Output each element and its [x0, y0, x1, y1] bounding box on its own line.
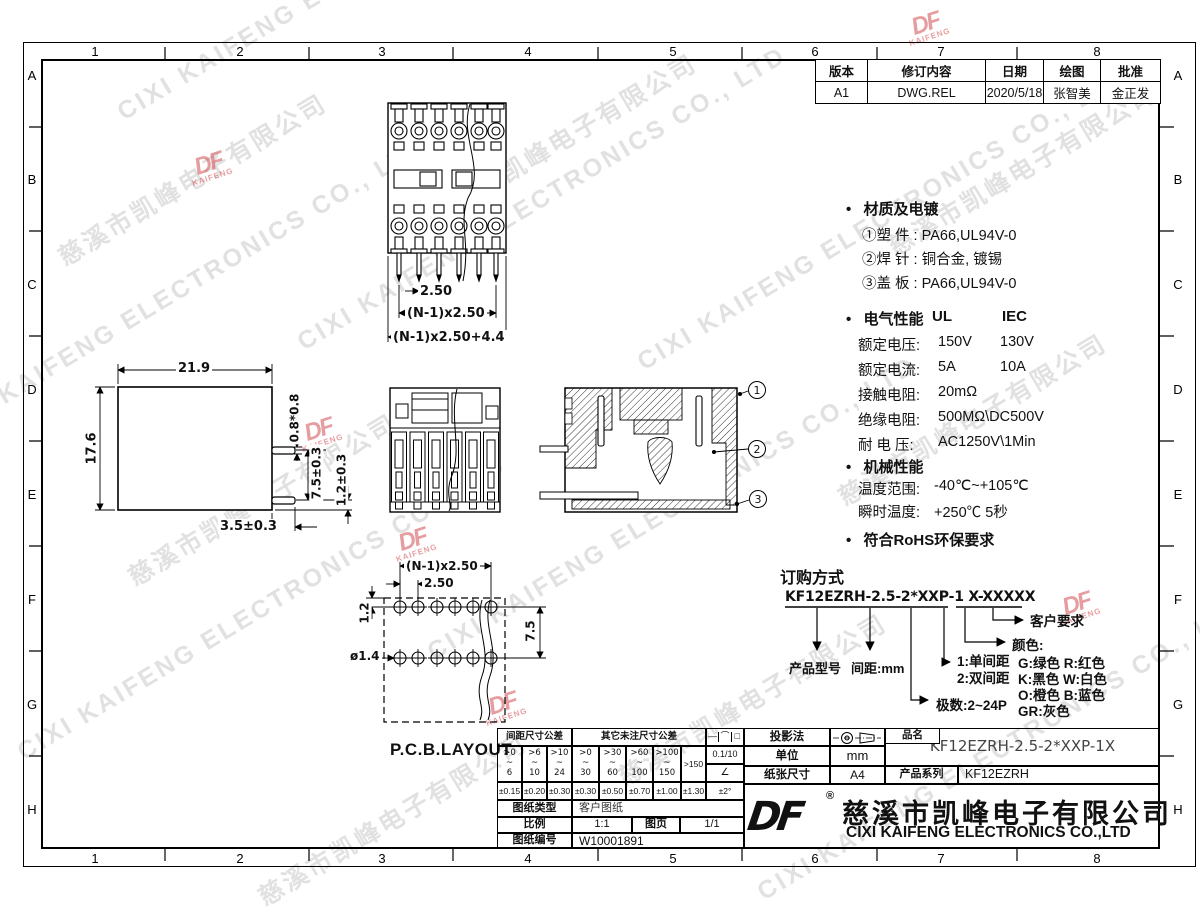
range-bot: 24	[551, 769, 569, 779]
sheet-type-label: 图纸类型	[497, 800, 572, 817]
spec-ul-value: 20mΩ	[938, 384, 977, 400]
spec-label: 额定电压:	[858, 334, 920, 355]
revision-cell: 张智美	[1044, 82, 1101, 104]
bullet-icon: •	[846, 532, 851, 549]
grid-row-label: C	[24, 277, 40, 292]
series-value: KF12EZRH	[958, 766, 1160, 784]
tol-value: ±0.30	[572, 782, 599, 800]
revision-cell: DWG.REL	[868, 82, 986, 104]
tol-value: ±2°	[706, 782, 744, 800]
revision-header: 绘图	[1044, 60, 1101, 82]
tol-value: ±1.00	[653, 782, 681, 800]
tol-angle-symbol: ∠	[706, 764, 744, 782]
grid-row-label: H	[24, 802, 40, 817]
grid-col-label: 3	[374, 851, 390, 866]
unit-value: mm	[830, 746, 885, 766]
drawing-sheet: 慈溪市凯峰电子有限公司 CIXI KAIFENG ELECTRONICS CO.…	[0, 0, 1200, 910]
range-bot: 100	[631, 769, 649, 779]
grid-row-label: D	[24, 382, 40, 397]
spec-value: -40℃~+105℃	[934, 478, 1029, 494]
range-bot: 10	[528, 769, 541, 779]
dim-pin-edge: 1.2±0.3	[334, 452, 348, 509]
grid-col-label: 4	[520, 44, 536, 59]
revision-cell: 2020/5/18	[986, 82, 1044, 104]
grid-row-label: E	[1170, 487, 1186, 502]
spec-label: 接触电阻:	[858, 384, 920, 405]
tol-range: >0~30	[572, 746, 599, 782]
tol-symbols: — ⌒ □	[706, 728, 744, 746]
square-symbol: □	[732, 732, 743, 741]
range-bot: 60	[604, 769, 622, 779]
spec-value: +250℃ 5秒	[934, 501, 1008, 522]
flatness-symbol: —	[707, 732, 718, 741]
callout-3: 3	[749, 490, 767, 508]
ordering-title: 订购方式	[780, 564, 844, 588]
drawing-no-value: W10001891	[572, 833, 744, 849]
ordering-poles-label: 极数:2~24P	[936, 694, 1007, 714]
tol-value: ±0.15	[497, 782, 522, 800]
spec-label: 耐 电 压:	[858, 434, 914, 455]
spec-label: 额定电流:	[858, 359, 920, 380]
tol-surface: 0.1/10	[706, 746, 744, 764]
revision-cell: A1	[816, 82, 868, 104]
bullet-icon: •	[846, 201, 851, 218]
spec-ul-value: 150V	[938, 334, 972, 350]
electrical-title: 电气性能	[863, 311, 923, 328]
grid-row-label: F	[1170, 592, 1186, 607]
ordering-row-double-label: 2:双间距	[957, 667, 1010, 687]
grid-col-label: 1	[87, 44, 103, 59]
dim-overall: (N-1)x2.50+4.4	[391, 330, 507, 345]
dim-pcb-offset: 1.2	[358, 600, 372, 625]
series-label: 产品系列	[885, 766, 958, 784]
page-label: 图页	[632, 817, 680, 833]
registered-mark: ®	[826, 790, 834, 802]
revision-table: 版本 修订内容 日期 绘图 批准 A1 DWG.REL 2020/5/18 张智…	[815, 59, 1161, 104]
drawing-no-label: 图纸编号	[497, 833, 572, 849]
ul-column-header: UL	[932, 308, 952, 325]
pcb-layout-label: P.C.B.LAYOUT	[390, 740, 512, 760]
dim-tail: 3.5±0.3	[218, 519, 279, 534]
tol-range: >100~150	[653, 746, 681, 782]
dim-pitch: 2.50	[418, 284, 454, 299]
callout-1: 1	[748, 381, 766, 399]
ordering-product-model-label: 产品型号	[789, 658, 841, 677]
spec-label: 温度范围:	[858, 478, 920, 499]
dim-pcb-span: (N-1)x2.50	[404, 559, 480, 573]
range-bot: 6	[503, 769, 516, 779]
unit-label: 单位	[744, 746, 830, 766]
dim-pcb-pitch: 2.50	[422, 576, 456, 590]
revision-header: 批准	[1101, 60, 1161, 82]
dim-height: 17.6	[85, 430, 100, 466]
scale-label: 比例	[497, 817, 572, 833]
dim-pcb-hole: ø1.4	[348, 649, 382, 663]
grid-row-label: F	[24, 592, 40, 607]
company-logo: DF	[745, 794, 804, 840]
tol-value: ±0.30	[547, 782, 572, 800]
tol-range: >0~6	[497, 746, 522, 782]
tol-value: ±0.70	[626, 782, 653, 800]
grid-row-label: G	[1170, 697, 1186, 712]
tol-range: >60~100	[626, 746, 653, 782]
grid-col-label: 8	[1089, 851, 1105, 866]
projection-label: 投影法	[744, 728, 830, 746]
arc-symbol: ⌒	[718, 732, 731, 741]
grid-col-label: 3	[374, 44, 390, 59]
grid-col-label: 7	[933, 44, 949, 59]
material-item: ②焊 针 : 铜合金, 镀锡	[862, 248, 1002, 269]
spec-iec-value: 10A	[1000, 359, 1026, 375]
grid-row-label: H	[1170, 802, 1186, 817]
tol-pitch-header: 间距尺寸公差	[497, 728, 572, 746]
grid-row-label: D	[1170, 382, 1186, 397]
grid-col-label: 2	[232, 851, 248, 866]
mechanical-title: 机械性能	[863, 459, 923, 476]
paper-size-value: A4	[830, 766, 885, 784]
material-item: ③盖 板 : PA66,UL94V-0	[862, 272, 1016, 293]
grid-row-label: A	[24, 68, 40, 83]
revision-header: 版本	[816, 60, 868, 82]
ordering-customer-label: 客户要求	[1030, 610, 1084, 630]
bullet-icon: •	[846, 311, 851, 328]
iec-column-header: IEC	[1002, 308, 1027, 325]
grid-col-label: 1	[87, 851, 103, 866]
part-name-label: 品名	[885, 728, 940, 744]
dim-span: (N-1)x2.50	[405, 306, 487, 321]
tol-range: >6~10	[522, 746, 547, 782]
spec-iec-value: 130V	[1000, 334, 1034, 350]
grid-row-label: E	[24, 487, 40, 502]
spec-label: 绝缘电阻:	[858, 409, 920, 430]
sheet-type-value: 客户图纸	[572, 800, 744, 817]
projection-symbol-cell	[830, 728, 885, 746]
tol-over-range: >150	[681, 746, 706, 782]
spec-ul-value: 5A	[938, 359, 956, 375]
range-bot: 30	[579, 769, 592, 779]
grid-col-label: 2	[232, 44, 248, 59]
tol-range: >30~60	[599, 746, 626, 782]
tol-value: ±0.50	[599, 782, 626, 800]
grid-col-label: 8	[1089, 44, 1105, 59]
bullet-icon: •	[846, 459, 851, 476]
callout-2: 2	[748, 440, 766, 458]
ordering-color-option: GR:灰色	[1018, 700, 1070, 720]
tol-value: ±1.30	[681, 782, 706, 800]
grid-row-label: A	[1170, 68, 1186, 83]
dim-pcb-gap: 7.5	[524, 618, 538, 643]
grid-row-label: B	[1170, 172, 1186, 187]
revision-header: 日期	[986, 60, 1044, 82]
grid-row-label: C	[1170, 277, 1186, 292]
ordering-code: KF12EZRH-2.5-2*XXP-1 X-XXXXX	[785, 589, 1035, 605]
ordering-color-title: 颜色:	[1012, 634, 1044, 654]
grid-col-label: 5	[665, 851, 681, 866]
grid-col-label: 6	[807, 44, 823, 59]
tol-other-header: 其它未注尺寸公差	[572, 728, 706, 746]
paper-size-label: 纸张尺寸	[744, 766, 830, 784]
grid-col-label: 4	[520, 851, 536, 866]
revision-cell: 金正发	[1101, 82, 1161, 104]
company-name-en: CIXI KAIFENG ELECTRONICS CO.,LTD	[846, 824, 1131, 842]
scale-value: 1:1	[572, 817, 632, 833]
ordering-pitch-label: 间距:mm	[851, 658, 904, 677]
revision-header: 修订内容	[868, 60, 986, 82]
grid-col-label: 5	[665, 44, 681, 59]
rohs-note: 符合RoHS环保要求	[863, 532, 994, 549]
dim-pin-span: 7.5±0.3	[309, 445, 323, 502]
dim-width: 21.9	[176, 361, 212, 376]
spec-label: 瞬时温度:	[858, 501, 920, 522]
grid-row-label: B	[24, 172, 40, 187]
material-item: ①塑 件 : PA66,UL94V-0	[862, 224, 1016, 245]
material-title: 材质及电镀	[863, 201, 938, 218]
grid-row-label: G	[24, 697, 40, 712]
dim-pin-size: 0.8*0.8	[287, 392, 301, 445]
tol-range: >10~24	[547, 746, 572, 782]
range-bot: 150	[655, 769, 678, 779]
grid-col-label: 7	[933, 851, 949, 866]
spec-ul-value: 500MΩ\DC500V	[938, 409, 1044, 425]
tol-value: ±0.20	[522, 782, 547, 800]
grid-col-label: 6	[807, 851, 823, 866]
spec-ul-value: AC1250V\1Min	[938, 434, 1036, 450]
page-value: 1/1	[680, 817, 744, 833]
